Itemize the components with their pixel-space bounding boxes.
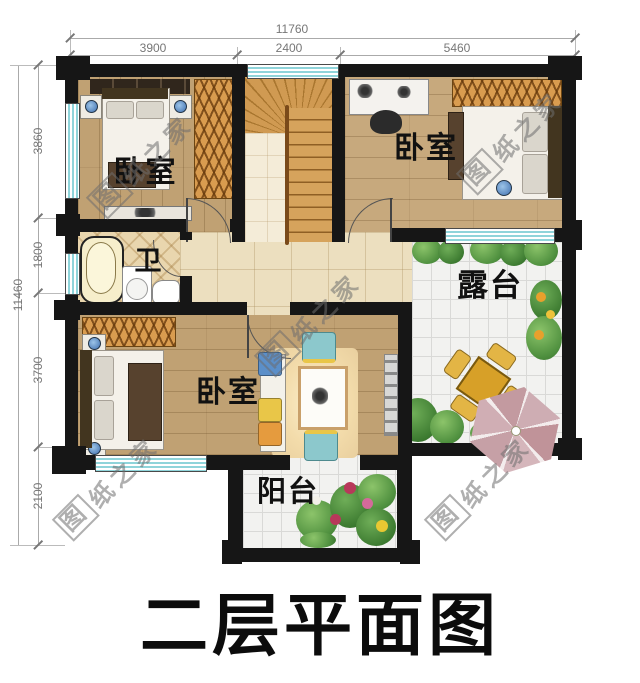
sink [152,280,180,304]
pillow [106,101,134,119]
dim-top-seg2: 2400 [259,41,319,55]
wall-bedroom1-south-a [65,219,186,232]
dim-left-seg2: 1800 [31,225,45,285]
wall-bedroom3-east [398,302,412,470]
stair-landing [245,133,288,242]
dim-top-seg3: 5460 [427,41,487,55]
shrub [300,532,336,548]
flower-crimson [344,482,356,494]
desk-chair [370,110,402,134]
dim-left-seg3: 3700 [31,340,45,400]
wall-bedroom1-stairs [232,64,245,242]
sofa-cushion-orange [258,422,282,446]
stair-handrail [285,105,289,245]
pillow [94,400,114,440]
wall-hall-south-a [65,302,247,315]
pillar [562,220,582,250]
pillar [52,446,86,474]
wall-bath-east-b [180,276,192,302]
terrace-label: 露台 [444,270,536,301]
table-decor [312,386,328,406]
door-bedroom3-leaf [247,315,249,358]
flower-crimson [330,514,341,525]
bed-headboard [80,350,92,448]
pillow [522,154,548,194]
pillar [548,56,582,80]
bathroom-label: 卫 [132,248,166,275]
desk-items [356,84,374,98]
shrub [526,316,562,360]
pillow [94,356,114,396]
dresser-decor [130,208,160,217]
dim-left-seg4: 2100 [31,466,45,526]
bed-end-bench [128,363,162,441]
tv-cabinet [384,354,398,436]
flower-orange [534,330,544,340]
window-top-stairwell [247,64,339,79]
wall-stairs-bedroom2 [332,64,345,242]
pillar [54,300,80,320]
vase-decor [88,337,101,350]
bedroom-bottom-label: 卧室 [178,378,278,408]
pillar [222,540,242,564]
dim-left-overall: 11460 [11,265,25,325]
pillow [136,101,164,119]
wall-right [562,64,576,456]
window-bathroom-west [65,253,80,295]
window-bedroom2-terrace [445,228,555,244]
flower-yellow [376,520,388,532]
balcony-label: 阳台 [246,478,330,507]
wall-balcony-south [228,548,412,562]
bed-headboard [102,88,168,99]
toilet-bowl [126,278,148,300]
pillar [56,56,90,80]
pillar [56,214,80,236]
vase-decor [85,100,98,113]
window-bedroom1-west [65,103,80,199]
dim-left-seg1: 3860 [31,111,45,171]
armchair [304,430,338,461]
wall-bedroom1-south-b [230,219,245,232]
floor-plan-sheet: 11760 3900 2400 5460 11460 3860 1800 370… [0,0,640,683]
flower-orange [536,292,546,302]
pillar [400,540,420,564]
stair-flight [288,108,332,242]
dim-line-top-overall [70,38,575,39]
vase-decor [496,180,512,196]
dim-top-overall: 11760 [262,22,322,36]
flower-yellow [546,310,555,319]
dim-ext [38,293,65,294]
sheet-title: 二层平面图 [0,592,640,660]
desk-items [396,86,412,98]
dim-top-seg1: 3900 [123,41,183,55]
bedroom-top-right-label: 卧室 [376,134,476,164]
bathtub-basin [86,242,116,294]
dim-line-top-segments [70,55,575,56]
wall-bath-east-a [180,232,192,240]
wall-bedroom2-south-a [392,228,445,242]
hanger-closet [194,79,234,199]
flower-pink [362,498,373,509]
pillar [558,438,582,460]
